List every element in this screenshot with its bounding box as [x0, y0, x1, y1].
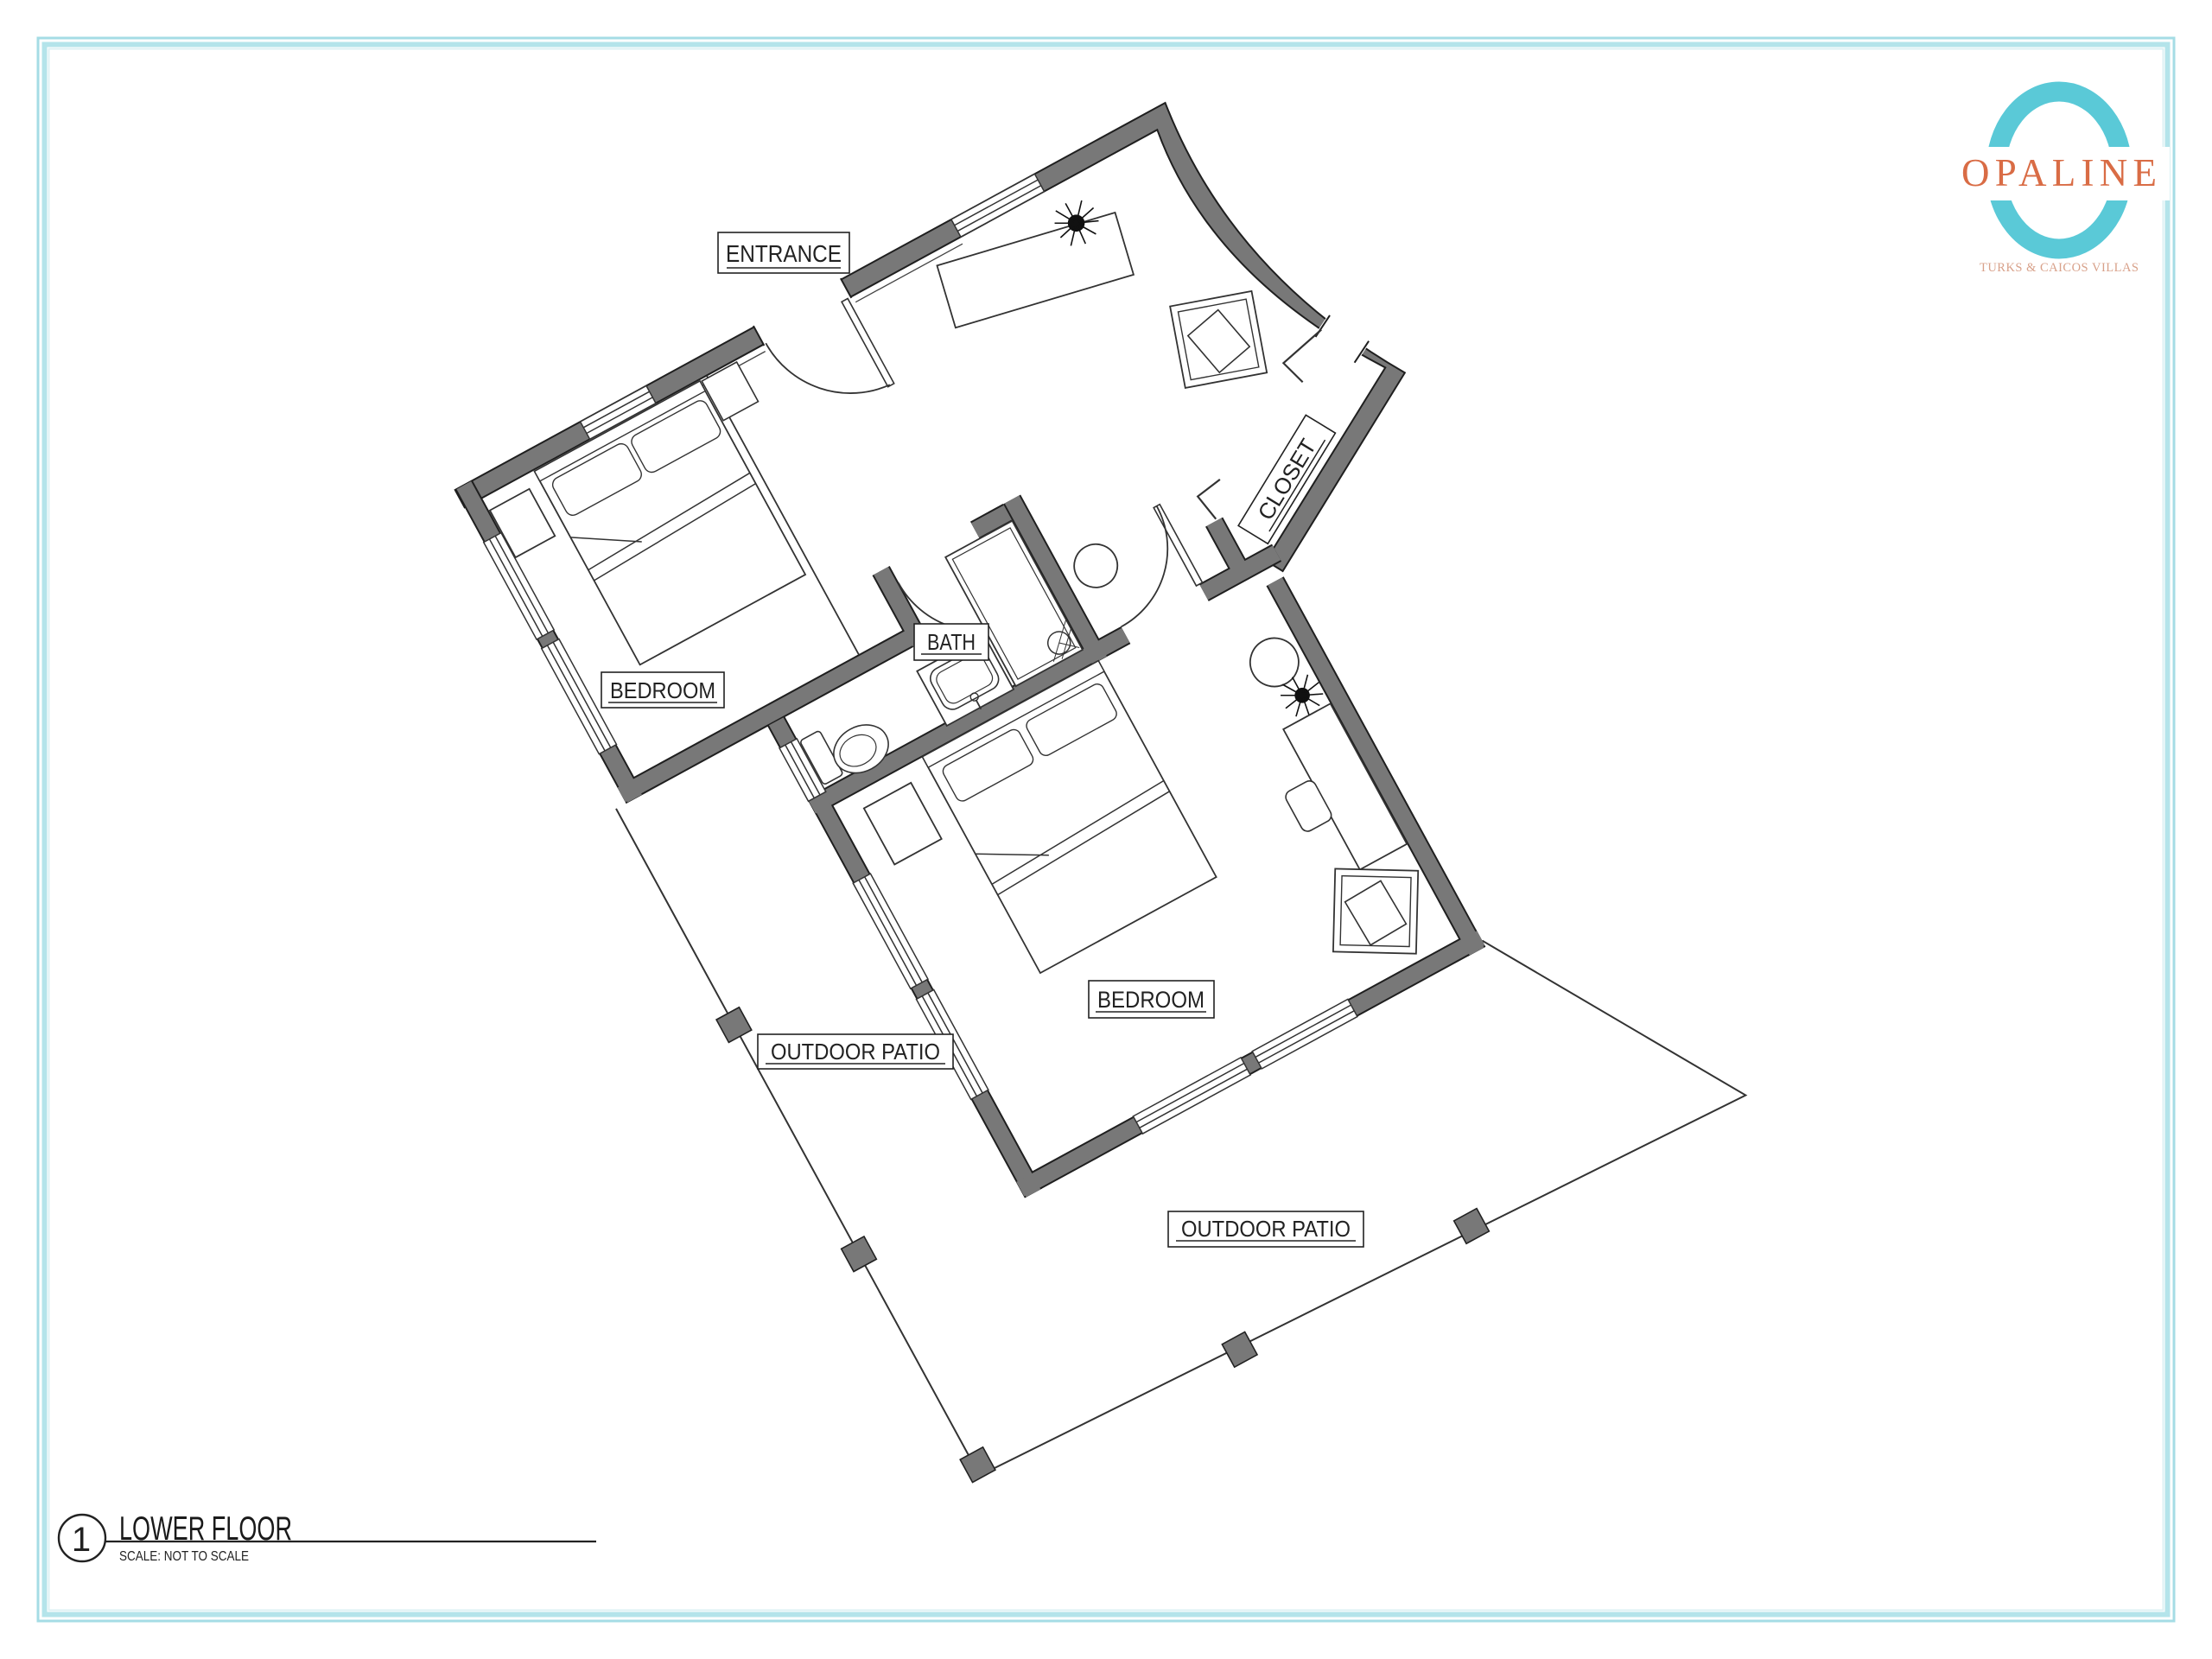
svg-text:BEDROOM: BEDROOM	[1097, 987, 1205, 1013]
svg-text:1: 1	[72, 1521, 91, 1559]
svg-text:SCALE: NOT TO SCALE: SCALE: NOT TO SCALE	[119, 1549, 249, 1564]
svg-text:OUTDOOR PATIO: OUTDOOR PATIO	[771, 1039, 940, 1065]
svg-text:TURKS & CAICOS VILLAS: TURKS & CAICOS VILLAS	[1980, 261, 2139, 275]
svg-text:BATH: BATH	[927, 629, 976, 655]
svg-text:BEDROOM: BEDROOM	[610, 677, 715, 703]
svg-text:OUTDOOR PATIO: OUTDOOR PATIO	[1181, 1216, 1351, 1242]
svg-text:ENTRANCE: ENTRANCE	[726, 240, 842, 267]
